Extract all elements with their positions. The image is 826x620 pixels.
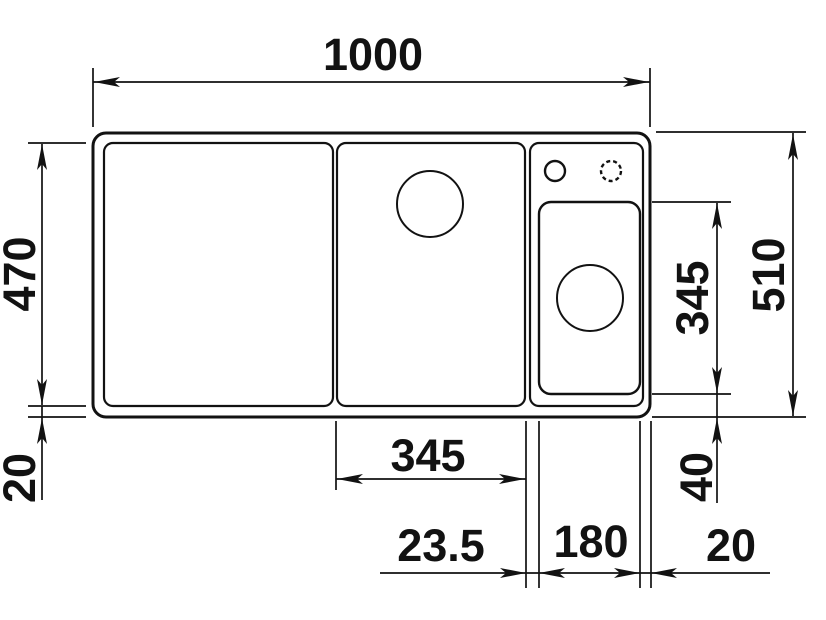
sink-dimension-drawing: 1000 510 345 40 470 bbox=[0, 0, 826, 620]
dim-basin-inner-depth-label: 470 bbox=[0, 236, 45, 311]
dim-small-bowl-bottom-rim: 40 bbox=[671, 393, 722, 503]
dim-small-bowl-depth: 345 bbox=[652, 202, 731, 394]
sink-outline bbox=[93, 133, 650, 417]
dim-small-bowl-bottom-rim-label: 40 bbox=[671, 452, 722, 502]
right-panel-section bbox=[530, 143, 643, 406]
small-bowl-drain-hole bbox=[557, 265, 623, 331]
dim-basin-inner-depth: 470 bbox=[0, 143, 86, 406]
small-bowl bbox=[539, 202, 640, 394]
tap-hole bbox=[545, 161, 565, 181]
optional-tap-hole-dashed bbox=[601, 161, 621, 181]
dim-overall-width-label: 1000 bbox=[323, 29, 423, 80]
drainboard-section bbox=[104, 143, 333, 406]
dim-right-rim-label: 20 bbox=[706, 520, 756, 571]
dim-overall-depth-label: 510 bbox=[743, 237, 794, 312]
dim-overall-width: 1000 bbox=[93, 29, 650, 127]
main-bowl-drain-hole bbox=[397, 171, 463, 237]
drawing-svg: 1000 510 345 40 470 bbox=[0, 0, 826, 620]
dim-small-bowl-width-label: 180 bbox=[553, 516, 628, 567]
dim-middle-section-width-label: 345 bbox=[390, 430, 465, 481]
dim-left-bottom-rim: 20 bbox=[0, 406, 86, 503]
dim-divider-width-label: 23.5 bbox=[397, 520, 485, 571]
dim-left-bottom-rim-label: 20 bbox=[0, 453, 45, 503]
dim-small-bowl-depth-label: 345 bbox=[667, 260, 718, 335]
main-bowl-section bbox=[337, 143, 525, 406]
